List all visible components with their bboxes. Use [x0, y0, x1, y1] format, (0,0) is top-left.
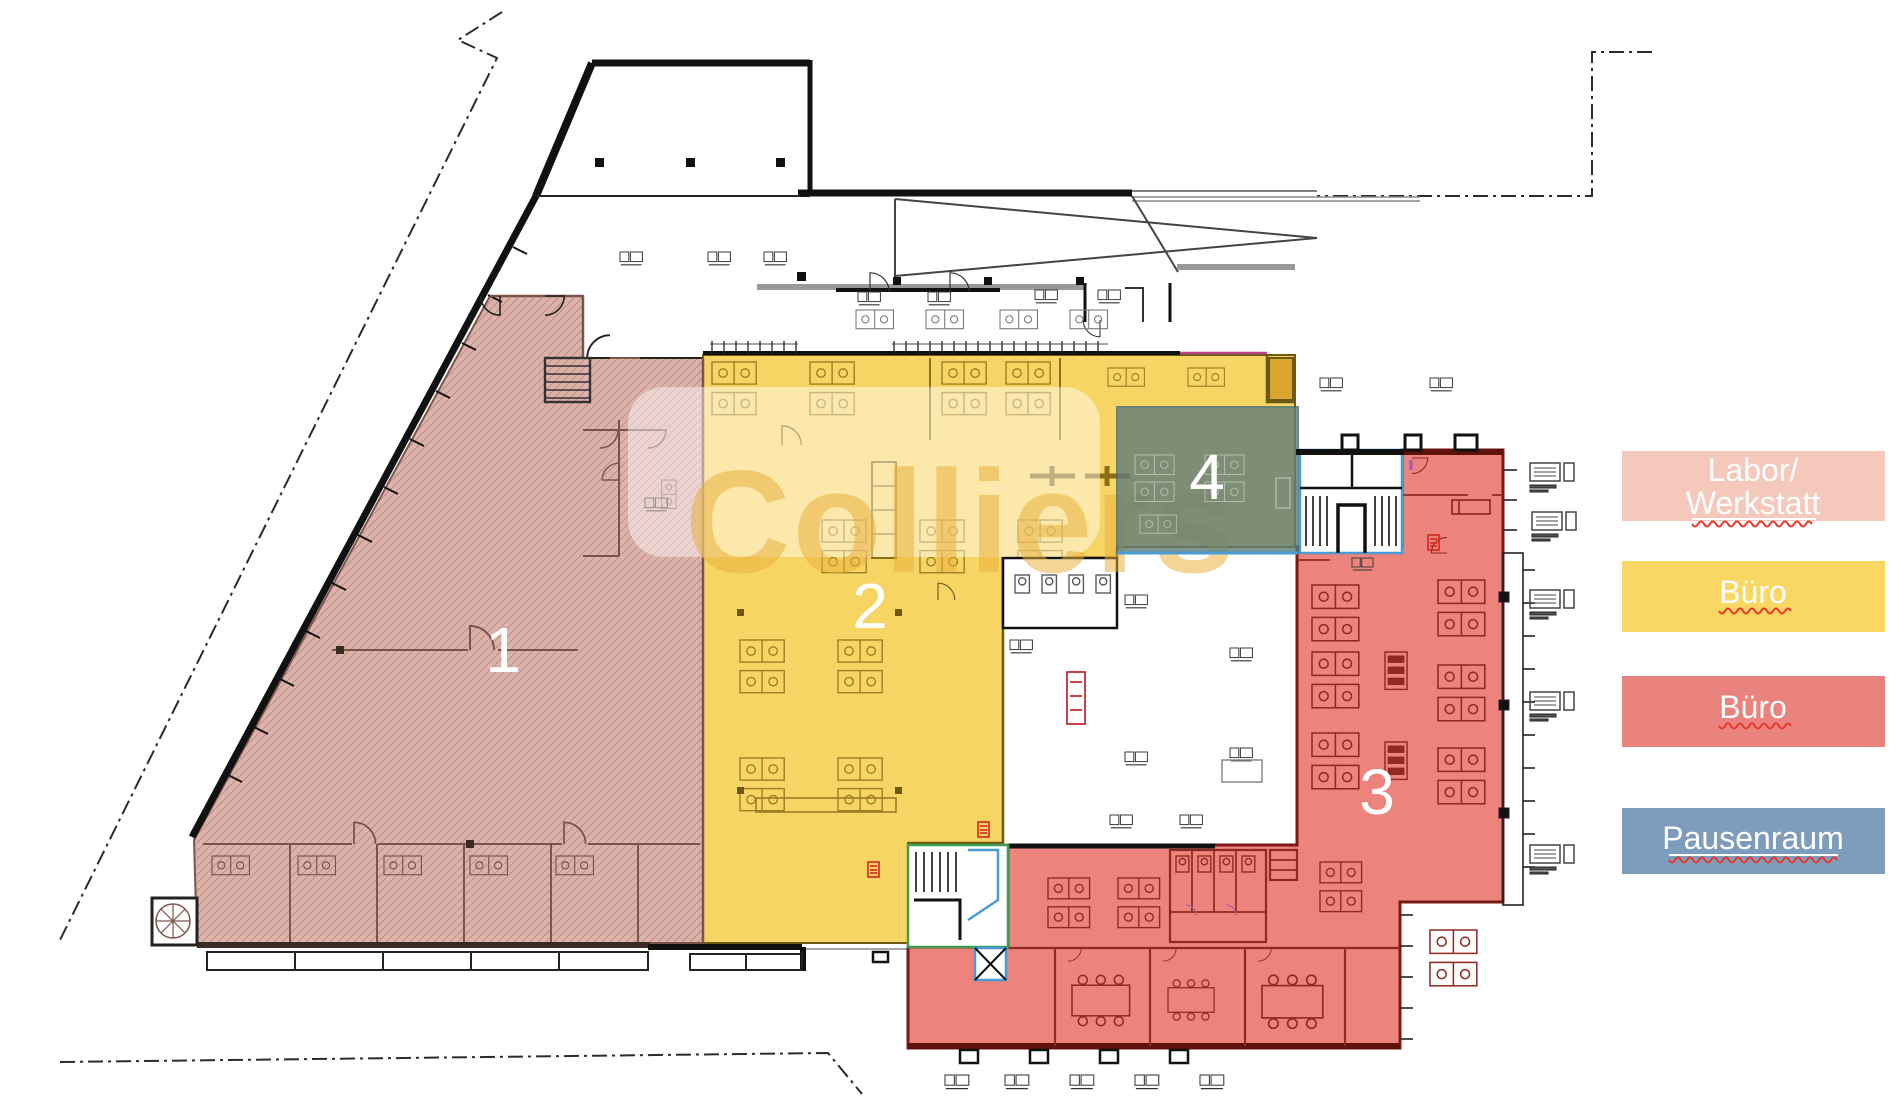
legend-label-pausenraum: Pausenraum [1662, 820, 1843, 856]
zone-1-label: 1 [485, 614, 521, 686]
legend-item-pausenraum: Pausenraum [1622, 808, 1885, 874]
legend-label-buero-gelb: Büro [1719, 574, 1787, 610]
legend-label-labor: Labor/ [1708, 452, 1799, 488]
floor-plan-drawing: Colliers 1 2 3 4 [0, 0, 1900, 1118]
upper-desks [856, 310, 1107, 329]
bottom-facade [945, 1050, 1224, 1089]
upper-block [536, 60, 1420, 281]
legend-label-buero-rot: Büro [1719, 689, 1787, 725]
legend-label-werkstatt: Werkstatt [1686, 485, 1821, 521]
zone-1-area [192, 196, 703, 943]
ramp [757, 196, 1317, 287]
upper-corridor-walls [836, 273, 1170, 337]
spellcheck-squiggle [1692, 522, 1812, 527]
legend-item-labor-werkstatt: Labor/ Werkstatt [1622, 451, 1885, 527]
zone-4-label: 4 [1189, 441, 1225, 513]
zone-2-label: 2 [852, 570, 888, 642]
legend-item-buero-rot: Büro [1622, 676, 1885, 747]
spiral-stair [152, 898, 197, 945]
zone-3-label: 3 [1359, 756, 1395, 828]
legend: Labor/ Werkstatt Büro Büro Pausenraum [1622, 451, 1885, 874]
legend-item-buero-gelb: Büro [1622, 561, 1885, 632]
floor-plan-page: Colliers 1 2 3 4 [0, 0, 1900, 1118]
